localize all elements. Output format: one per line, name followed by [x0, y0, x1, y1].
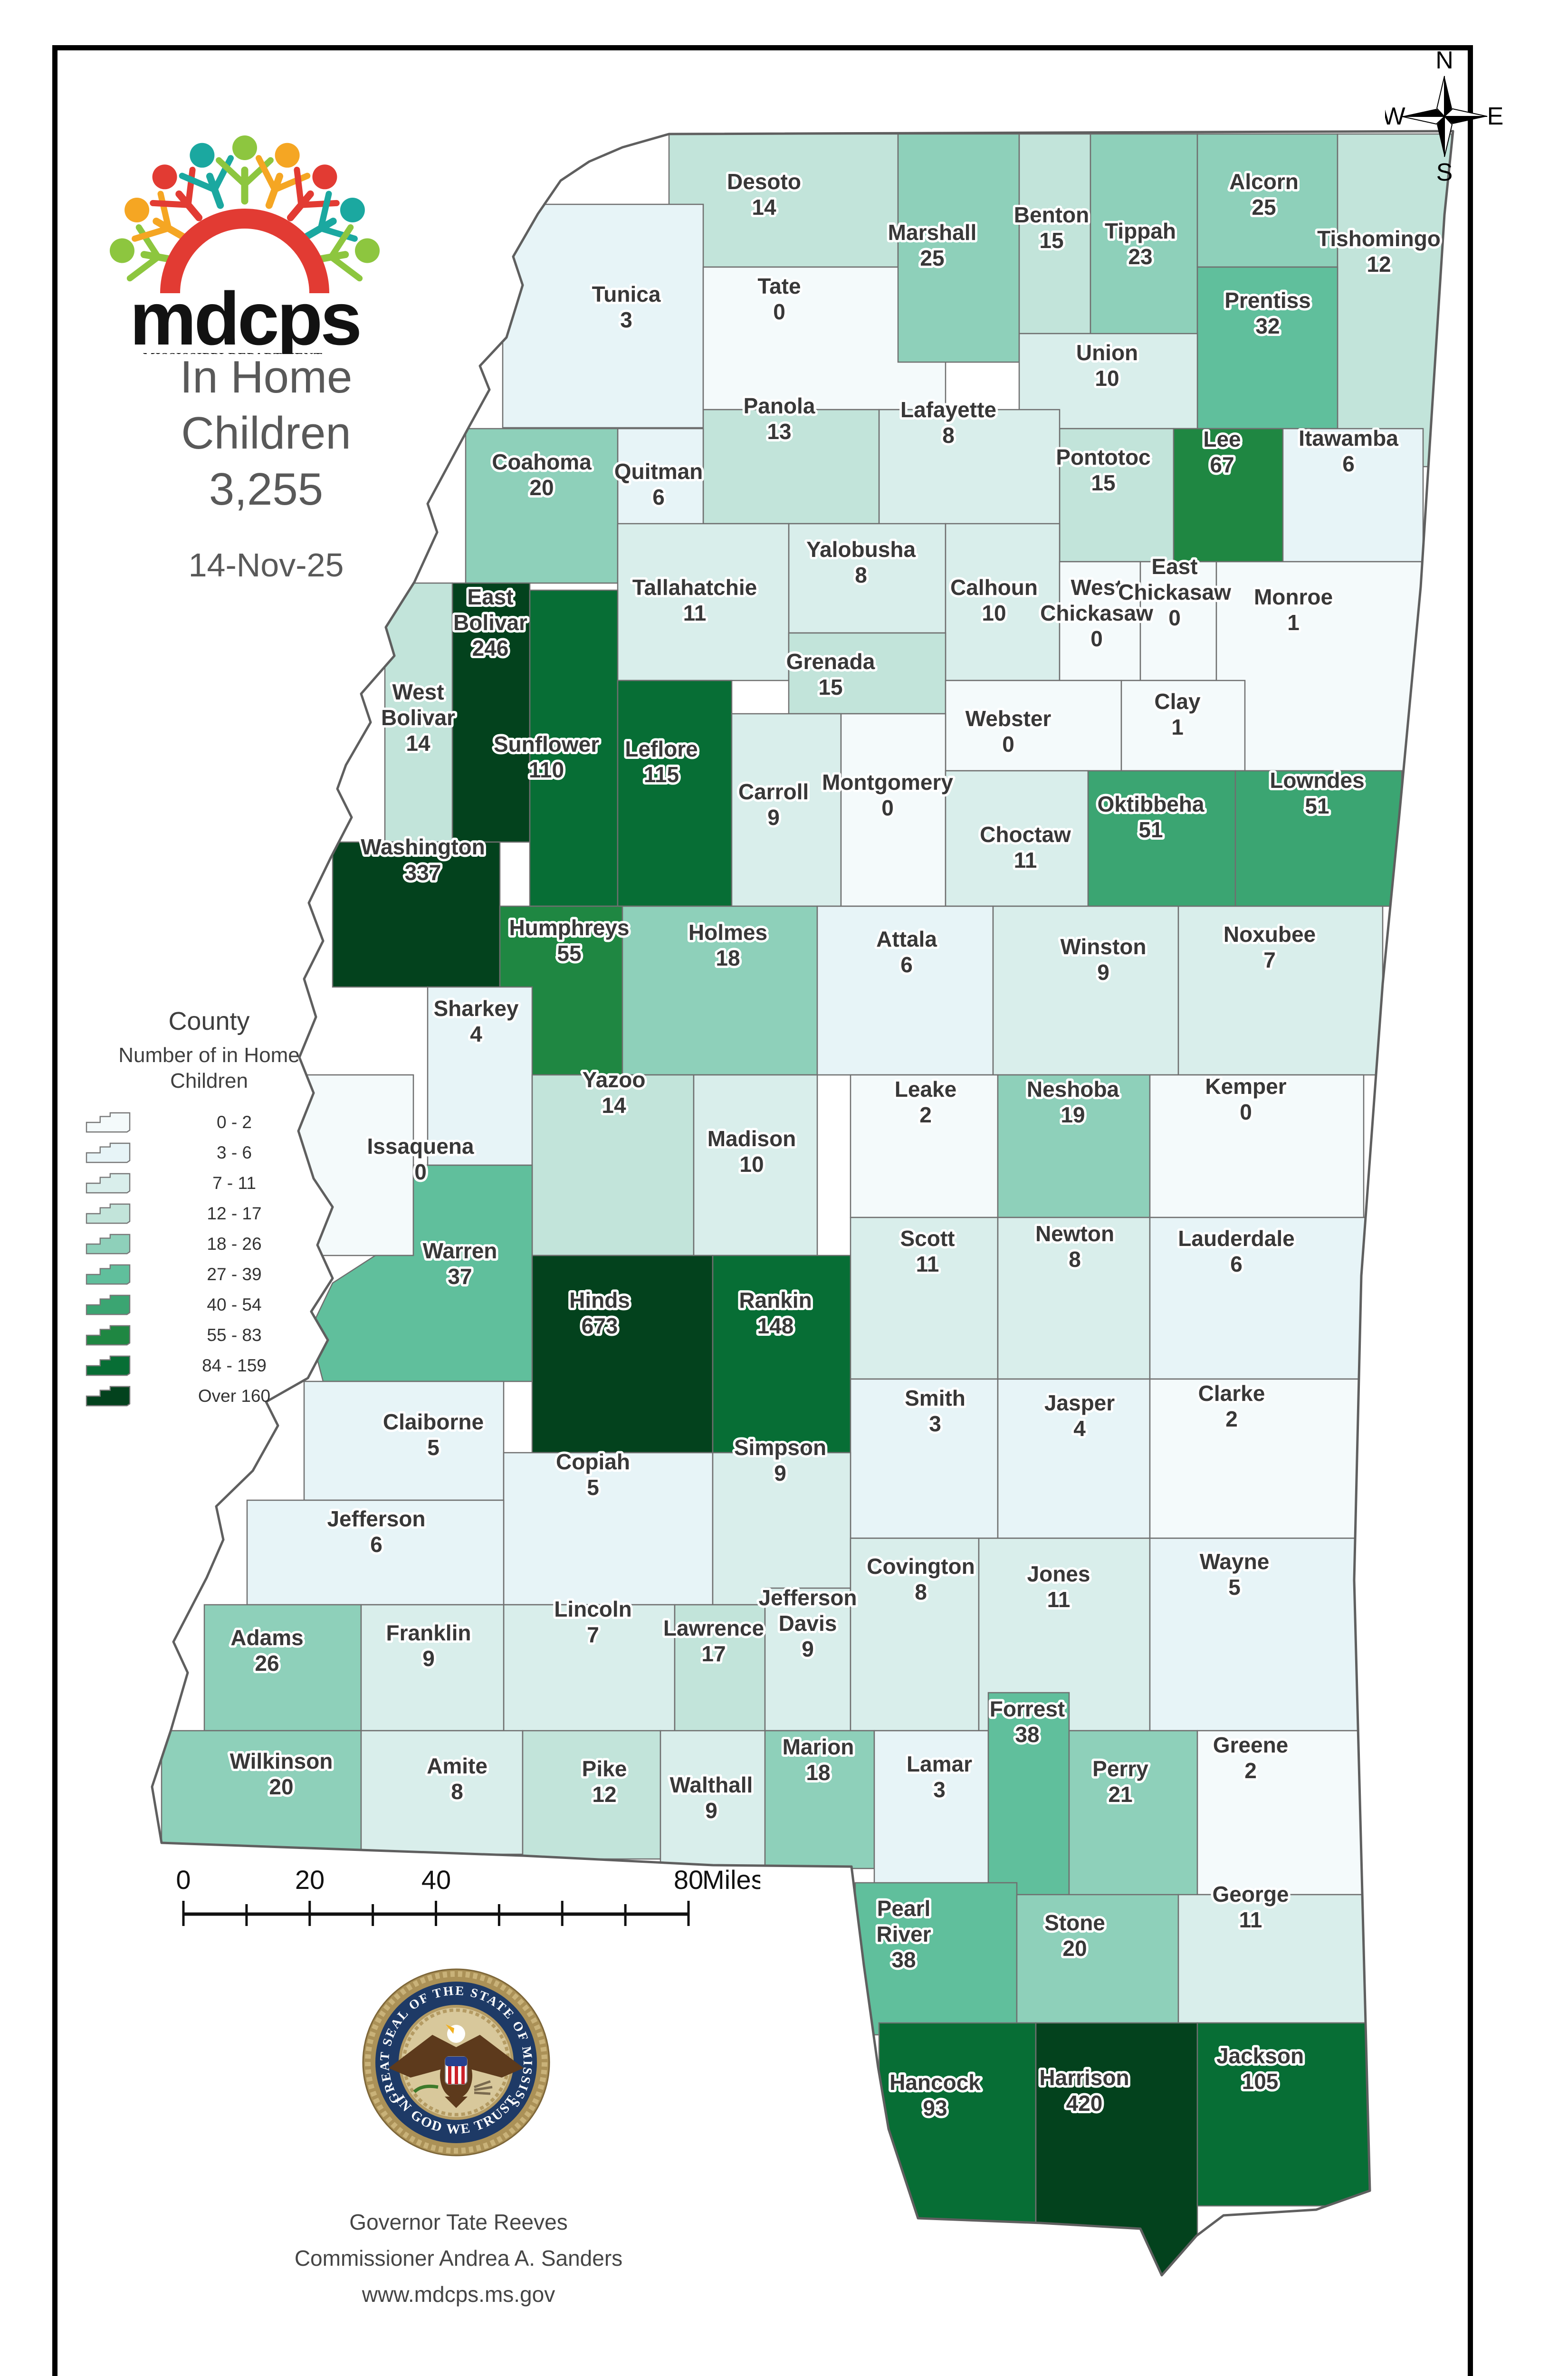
- scalebar-tick-80: 80: [674, 1865, 703, 1895]
- county-shape-george: [1178, 1895, 1368, 2023]
- county-shape-amite: [361, 1731, 523, 1854]
- title-date: 14-Nov-25: [119, 546, 413, 584]
- logo-people-fan: [110, 135, 380, 278]
- state-seal: THE GREAT SEAL OF THE STATE OF MISSISSIP…: [361, 1967, 551, 2157]
- mdcps-logo: mdcps MISSISSIPPI DEPARTMENT OF CHILD PR…: [90, 78, 399, 354]
- compass-n-label: N: [1435, 48, 1453, 74]
- county-shape-leflore: [618, 680, 732, 906]
- county-shape-copiah: [504, 1453, 713, 1605]
- legend-class-label: 18 - 26: [131, 1234, 337, 1254]
- legend-row: 0 - 2: [81, 1107, 337, 1138]
- legend-row: 18 - 26: [81, 1229, 337, 1259]
- scale-bar: 0 20 40 80 Miles: [166, 1865, 760, 1932]
- legend-subtitle-line1: Number of in Home: [81, 1043, 337, 1068]
- legend-class-label: 55 - 83: [131, 1325, 337, 1345]
- map-poster-page: Desoto14Tunica3Tate0Marshall25Benton15Ti…: [0, 0, 1568, 2376]
- legend-row: 55 - 83: [81, 1320, 337, 1351]
- legend-rows: 0 - 23 - 67 - 1112 - 1718 - 2627 - 3940 …: [81, 1107, 337, 1411]
- legend-class-label: 7 - 11: [131, 1173, 337, 1193]
- legend-row: 84 - 159: [81, 1351, 337, 1381]
- scalebar-tick-40: 40: [421, 1865, 451, 1895]
- legend-subtitle-line2: Children: [81, 1068, 337, 1094]
- county-shape-rankin: [713, 1255, 851, 1453]
- legend-class-label: 3 - 6: [131, 1143, 337, 1163]
- footer-credits: Governor Tate Reeves Commissioner Andrea…: [204, 2204, 713, 2312]
- legend-swatch: [86, 1233, 131, 1255]
- legend-row: 40 - 54: [81, 1290, 337, 1320]
- footer-commissioner: Commissioner Andrea A. Sanders: [204, 2240, 713, 2276]
- title-line1: In Home: [119, 349, 413, 405]
- legend-swatch: [86, 1324, 131, 1346]
- legend-row: Over 160: [81, 1381, 337, 1411]
- legend-class-label: Over 160: [131, 1386, 337, 1406]
- legend-swatch: [86, 1264, 131, 1285]
- footer-website: www.mdcps.ms.gov: [204, 2276, 713, 2312]
- county-shape-pike: [523, 1731, 660, 1859]
- legend-subtitle: Number of in Home Children: [81, 1043, 337, 1094]
- legend-swatch: [86, 1111, 131, 1133]
- legend-row: 27 - 39: [81, 1259, 337, 1290]
- title-line2: Children: [119, 405, 413, 461]
- legend-swatch: [86, 1294, 131, 1316]
- county-shape-hancock: [879, 2023, 1036, 2223]
- legend: County Number of in Home Children 0 - 23…: [81, 1006, 337, 1411]
- scalebar-unit: Miles: [702, 1865, 760, 1895]
- county-shape-harrison: [1036, 2023, 1197, 2277]
- county-shape-winston: [993, 906, 1178, 1075]
- legend-class-label: 84 - 159: [131, 1356, 337, 1376]
- compass-rose: N S W E: [1385, 48, 1504, 185]
- county-shape-hinds: [532, 1255, 713, 1453]
- legend-swatch: [86, 1142, 131, 1164]
- legend-class-label: 40 - 54: [131, 1295, 337, 1315]
- compass-w-label: W: [1385, 103, 1405, 130]
- title-total: 3,255: [119, 461, 413, 517]
- legend-title: County: [81, 1006, 337, 1036]
- compass-e-label: E: [1487, 103, 1504, 130]
- legend-swatch: [86, 1172, 131, 1194]
- footer-governor: Governor Tate Reeves: [204, 2204, 713, 2240]
- county-shape-tunica: [503, 204, 703, 428]
- legend-class-label: 0 - 2: [131, 1112, 337, 1132]
- legend-swatch: [86, 1355, 131, 1377]
- county-shape-adams: [204, 1605, 361, 1731]
- legend-row: 3 - 6: [81, 1138, 337, 1168]
- county-shape-carroll: [732, 714, 841, 906]
- compass-s-label: S: [1436, 159, 1453, 185]
- legend-class-label: 27 - 39: [131, 1265, 337, 1284]
- legend-class-label: 12 - 17: [131, 1204, 337, 1224]
- logo-wordmark: mdcps: [130, 277, 360, 354]
- legend-swatch: [86, 1203, 131, 1225]
- county-shape-marshall: [898, 134, 1019, 362]
- legend-row: 12 - 17: [81, 1198, 337, 1229]
- legend-row: 7 - 11: [81, 1168, 337, 1198]
- scalebar-tick-0: 0: [176, 1865, 191, 1895]
- compass-star-icon: [1402, 76, 1487, 157]
- title-block: In Home Children 3,255 14-Nov-25: [119, 349, 413, 584]
- legend-swatch: [86, 1385, 131, 1407]
- scalebar-tick-20: 20: [295, 1865, 325, 1895]
